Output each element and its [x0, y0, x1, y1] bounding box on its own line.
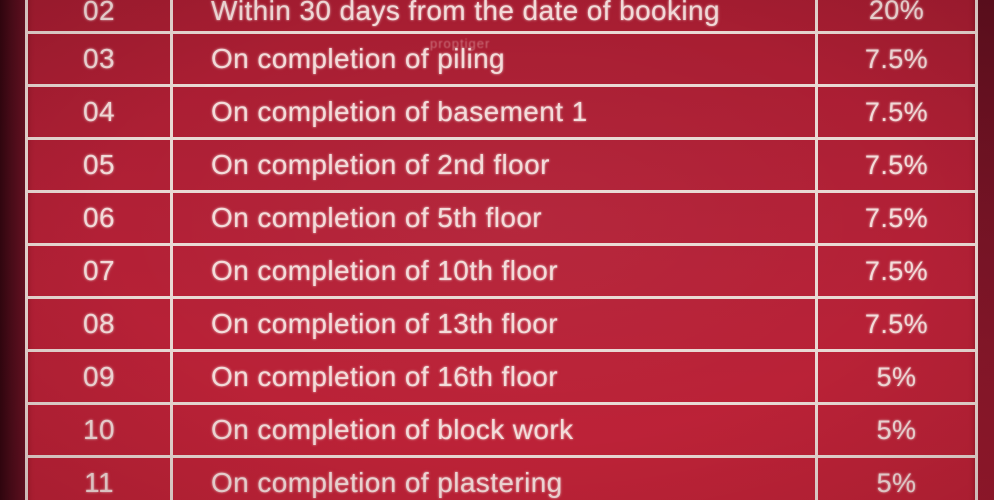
milestone-cell: On completion of 16th floor [173, 352, 818, 402]
serial-cell: 07 [28, 246, 173, 296]
serial-cell: 03 [28, 34, 173, 84]
milestone-cell: On completion of block work [173, 405, 818, 455]
table-row: 05 On completion of 2nd floor 7.5% [28, 140, 975, 193]
milestone-cell: On completion of piling [173, 34, 818, 84]
table-row: 09 On completion of 16th floor 5% [28, 352, 975, 405]
serial-cell: 08 [28, 299, 173, 349]
table-row: 11 On completion of plastering 5% [28, 458, 975, 500]
table-row: 03 On completion of piling 7.5% [28, 34, 975, 87]
serial-cell: 04 [28, 87, 173, 137]
payment-schedule-image: 02 Within 30 days from the date of booki… [0, 0, 994, 500]
percentage-cell: 5% [818, 405, 975, 455]
right-margin-strip [978, 0, 994, 500]
site-watermark: proptiger [430, 36, 490, 51]
serial-cell: 06 [28, 193, 173, 243]
table-row: 06 On completion of 5th floor 7.5% [28, 193, 975, 246]
milestone-cell: On completion of 13th floor [173, 299, 818, 349]
milestone-cell: On completion of 5th floor [173, 193, 818, 243]
table-row: 02 Within 30 days from the date of booki… [28, 0, 975, 34]
percentage-cell: 7.5% [818, 87, 975, 137]
milestone-cell: On completion of 2nd floor [173, 140, 818, 190]
payment-schedule-table: 02 Within 30 days from the date of booki… [25, 0, 978, 500]
serial-cell: 05 [28, 140, 173, 190]
milestone-cell: On completion of plastering [173, 458, 818, 500]
serial-cell: 11 [28, 458, 173, 500]
milestone-cell: Within 30 days from the date of booking [173, 0, 818, 31]
serial-cell: 10 [28, 405, 173, 455]
milestone-cell: On completion of 10th floor [173, 246, 818, 296]
percentage-cell: 5% [818, 352, 975, 402]
table-row: 07 On completion of 10th floor 7.5% [28, 246, 975, 299]
percentage-cell: 7.5% [818, 34, 975, 84]
percentage-cell: 7.5% [818, 140, 975, 190]
table-row: 04 On completion of basement 1 7.5% [28, 87, 975, 140]
table-row: 08 On completion of 13th floor 7.5% [28, 299, 975, 352]
milestone-cell: On completion of basement 1 [173, 87, 818, 137]
percentage-cell: 7.5% [818, 299, 975, 349]
serial-cell: 09 [28, 352, 173, 402]
left-margin-strip [0, 0, 25, 500]
serial-cell: 02 [28, 0, 173, 31]
percentage-cell: 7.5% [818, 246, 975, 296]
table-row: 10 On completion of block work 5% [28, 405, 975, 458]
percentage-cell: 7.5% [818, 193, 975, 243]
percentage-cell: 5% [818, 458, 975, 500]
percentage-cell: 20% [818, 0, 975, 31]
